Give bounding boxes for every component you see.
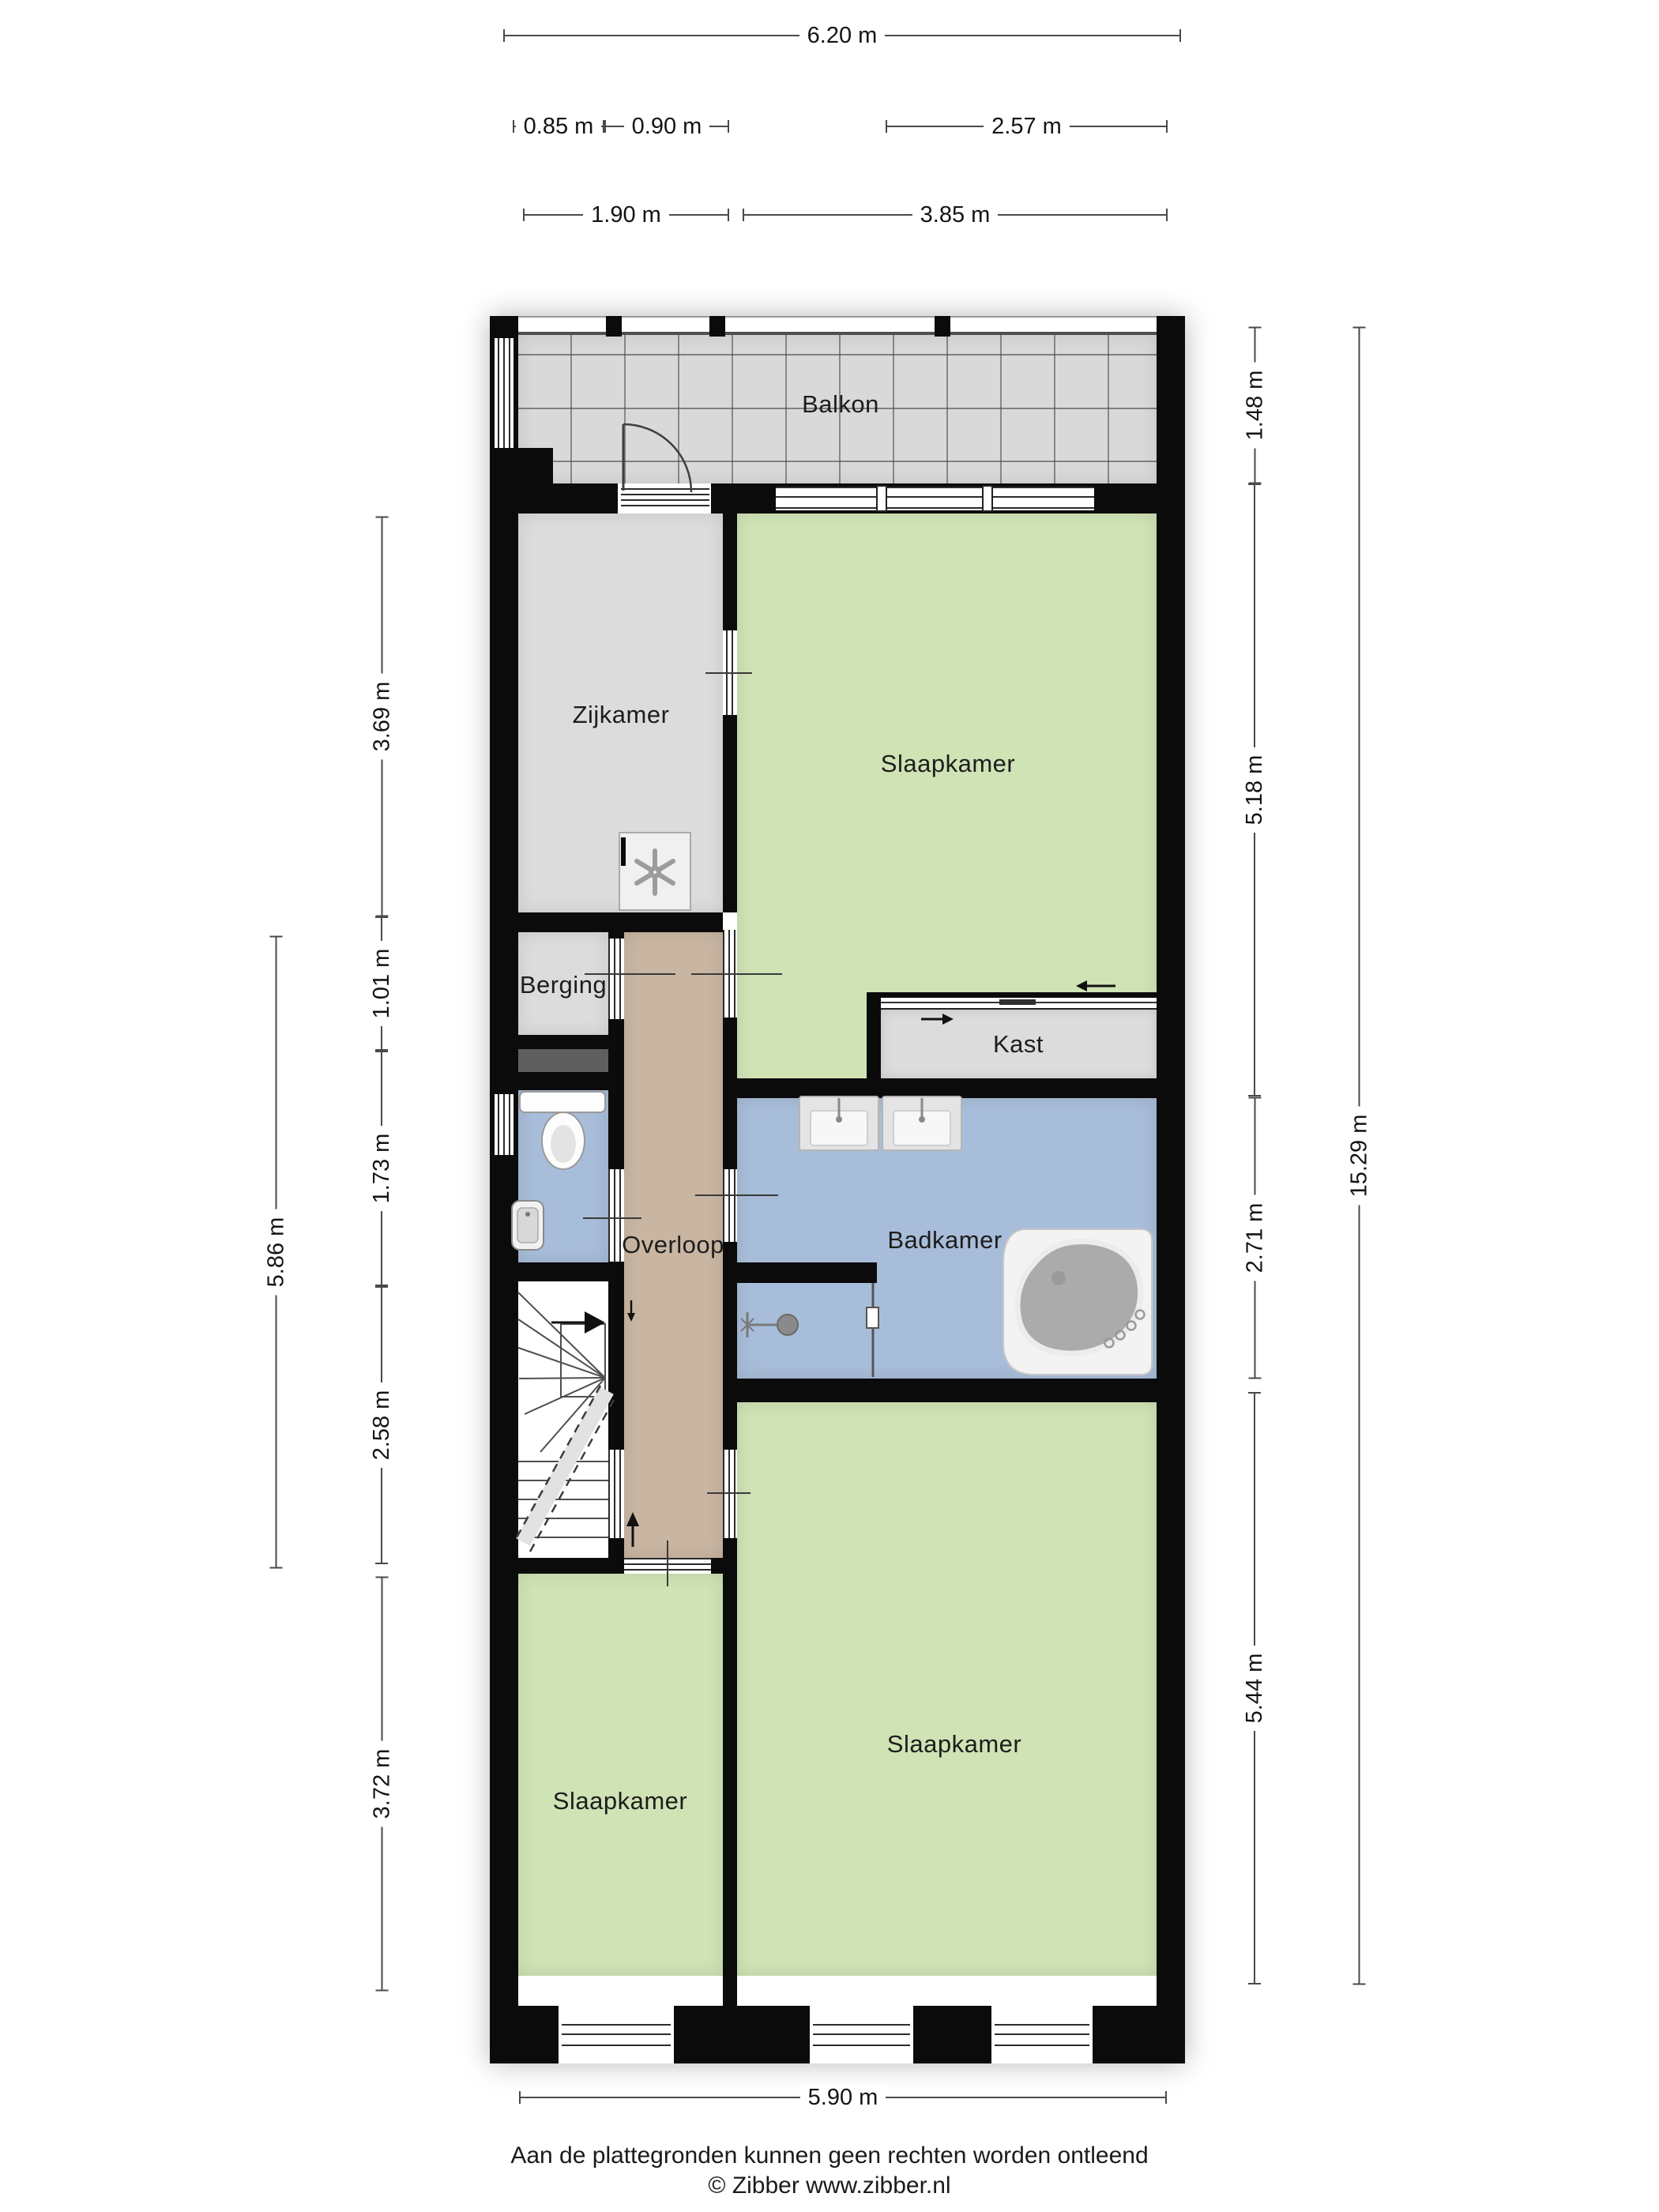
label-slaapkamer-right: Slaapkamer <box>887 1730 1021 1759</box>
label-badkamer: Badkamer <box>887 1226 1002 1255</box>
wall-badkamer-top <box>737 1078 1157 1098</box>
tick-door-slaapkamer-top <box>691 973 782 975</box>
dim-berging-height: 1.01 m <box>370 916 393 1051</box>
window-band-top <box>776 487 1094 510</box>
label-zijkamer: Zijkamer <box>573 701 670 729</box>
label-kast: Kast <box>993 1030 1044 1059</box>
label-overloop: Overloop <box>622 1231 724 1259</box>
wall-kast-stub <box>867 992 881 1078</box>
wall-corridor-left-1 <box>608 932 624 939</box>
dim-overloop-width: 0.90 m <box>604 115 729 138</box>
duct-niche <box>518 1049 608 1072</box>
dim-balkon-height: 1.48 m <box>1243 327 1267 484</box>
window-bottom-1 <box>562 2024 671 2046</box>
railing-post-corner-left <box>490 316 518 337</box>
window-bottom-3 <box>995 2024 1089 2046</box>
railing-post-3 <box>935 316 950 337</box>
wall-shower-stub <box>737 1262 877 1283</box>
dim-left-mid-height: 5.86 m <box>265 936 288 1569</box>
door-balkon <box>621 488 709 510</box>
dim-slaapkamer-left-height: 3.72 m <box>371 1577 394 1992</box>
tick-door-slaapkamer-right <box>707 1492 750 1494</box>
label-slaapkamer-top: Slaapkamer <box>881 750 1015 778</box>
dim-berging-width: 0.85 m <box>513 115 604 138</box>
tick-window-interior <box>705 672 752 674</box>
dim-zijkamer-width: 1.90 m <box>523 203 729 227</box>
room-toilet <box>518 1090 608 1262</box>
wall-corridor-left-3 <box>608 1262 624 1450</box>
wall-right-outer <box>1157 324 1185 2063</box>
window-divider-2 <box>982 485 993 512</box>
chimney-box <box>619 832 691 911</box>
railing-post-2 <box>709 316 725 337</box>
dim-toilet-height: 1.73 m <box>370 1051 393 1286</box>
wall-corridor-right-3 <box>723 1538 737 2006</box>
window-divider-1 <box>876 485 887 512</box>
window-toilet-left <box>495 1094 513 1155</box>
wall-toilet-bottom <box>490 1262 624 1281</box>
wall-corridor-right-2 <box>723 1242 737 1450</box>
wall-zijkamer-slaapkamer-lower <box>723 715 737 912</box>
dim-kast-width: 2.57 m <box>886 115 1168 138</box>
door-badkamer <box>723 1169 737 1242</box>
window-sill-right <box>737 1976 1157 2006</box>
footer-copyright: © Zibber www.zibber.nl <box>0 2172 1659 2199</box>
railing-post-corner-right <box>1157 316 1185 337</box>
label-slaapkamer-left: Slaapkamer <box>553 1787 687 1815</box>
railing-post-1 <box>606 316 622 337</box>
dim-slaapkamer-top-height: 5.18 m <box>1243 483 1266 1097</box>
kast-door-leaf <box>999 999 1036 1005</box>
wall-corridor-right-1 <box>723 1018 737 1169</box>
wall-corridor-left-4 <box>608 1538 624 1558</box>
dim-slaapkamer-width: 3.85 m <box>743 203 1168 227</box>
tick-door-badkamer <box>695 1194 778 1196</box>
wall-left-outer <box>490 324 518 2063</box>
wall-zijkamer-slaapkamer-upper <box>723 513 737 630</box>
tick-door-toilet <box>583 1217 641 1219</box>
wall-badkamer-bottom <box>723 1379 1157 1402</box>
window-sill-left <box>518 1976 723 2006</box>
window-bottom-2 <box>813 2024 910 2046</box>
room-slaapkamer-left <box>518 1574 723 1976</box>
door-slaapkamer-right <box>723 1450 737 1538</box>
dim-bottom-width: 5.90 m <box>519 2086 1167 2109</box>
wall-kast-top <box>867 992 1157 998</box>
window-balcony-left <box>495 338 513 448</box>
wall-balcony-step <box>490 448 553 483</box>
dim-zijkamer-height: 3.69 m <box>371 517 394 917</box>
dim-total-height: 15.29 m <box>1348 327 1371 1985</box>
dim-trap-height: 2.58 m <box>370 1286 393 1564</box>
floorplan-page: { "rooms": { "balkon": {"label": "Balkon… <box>0 0 1659 2212</box>
label-balkon: Balkon <box>802 390 879 419</box>
wall-berging-bottom <box>490 1035 624 1049</box>
room-slaapkamer-right <box>737 1402 1157 1976</box>
wall-zijkamer-bottom <box>518 912 723 932</box>
footer-disclaimer: Aan de plattegronden kunnen geen rechten… <box>0 2142 1659 2169</box>
door-berging <box>608 939 624 1019</box>
dim-badkamer-height: 2.71 m <box>1243 1097 1267 1379</box>
dim-slaapkamer-right-height: 5.44 m <box>1243 1392 1266 1984</box>
tick-door-slaapkamer-left <box>667 1540 668 1586</box>
dim-total-width: 6.20 m <box>503 24 1181 47</box>
chimney-flue-mark <box>621 837 626 866</box>
wall-niche-bottom <box>490 1072 624 1090</box>
stairwell <box>518 1281 608 1558</box>
label-berging: Berging <box>520 971 607 999</box>
balcony-railing <box>490 316 1185 335</box>
door-stairs <box>608 1450 624 1538</box>
